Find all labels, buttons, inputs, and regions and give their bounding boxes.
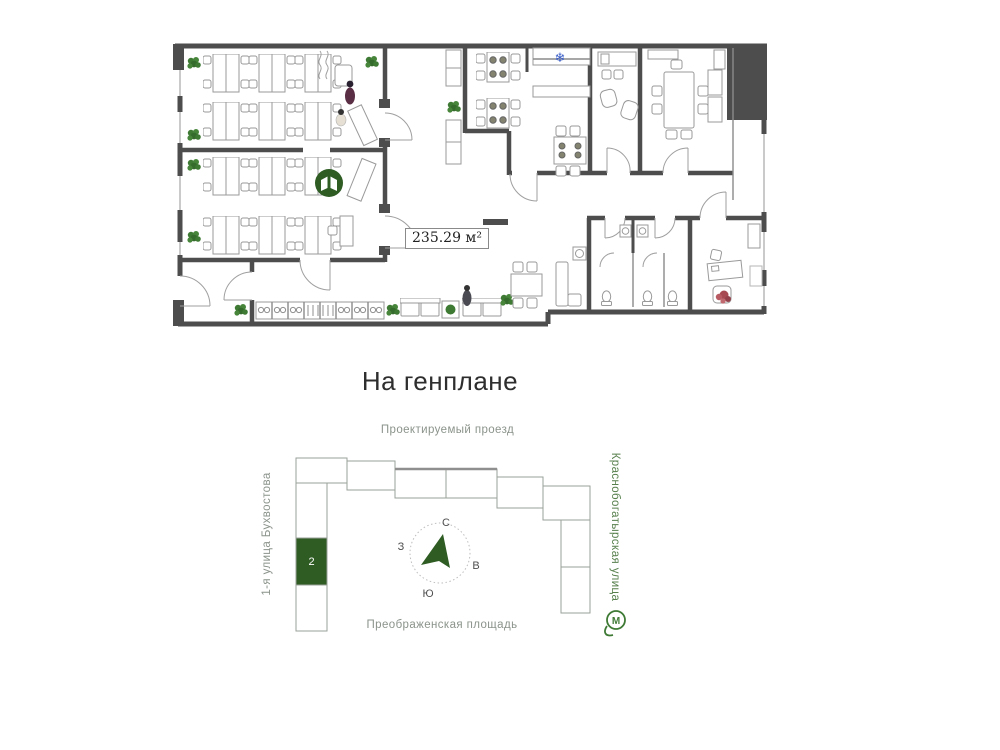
- desk-bank: [249, 102, 295, 140]
- dining-table: [554, 137, 586, 164]
- appliance: [573, 247, 586, 260]
- side-desk: [340, 216, 353, 246]
- desk-bank: [249, 157, 295, 195]
- tilted-desk: [347, 158, 376, 201]
- sink: [637, 225, 648, 237]
- conference-room: [648, 50, 725, 139]
- compass-north-label: С: [442, 517, 450, 529]
- tilted-desk: [348, 105, 378, 146]
- bathrooms: [602, 225, 678, 306]
- building-block: [497, 477, 543, 508]
- lounge-chair: [599, 88, 618, 108]
- building-block: [347, 461, 395, 490]
- genplan-title: На генплане: [335, 366, 545, 397]
- chair: [328, 226, 337, 235]
- metro-icon: М: [605, 611, 625, 635]
- toilet: [643, 291, 653, 306]
- building-block-2-highlighted[interactable]: 2: [296, 538, 327, 585]
- reception-counter: [483, 219, 508, 225]
- metro-letter: М: [612, 616, 620, 627]
- building-block: [296, 483, 327, 538]
- plant-icon: [187, 129, 200, 141]
- plant-icon: [187, 231, 200, 243]
- conference-table: [664, 72, 694, 128]
- building-number: 2: [308, 556, 314, 568]
- desk-bank: [249, 216, 295, 254]
- plant-icon: [234, 304, 247, 316]
- meeting-table: [511, 274, 542, 296]
- plant-icon: [386, 304, 399, 316]
- desk-bank: [295, 102, 341, 140]
- area-label: 235.29 м²: [405, 228, 489, 249]
- cabinet: [748, 224, 760, 248]
- kitchen-island: [533, 86, 590, 97]
- book-icon: [315, 169, 343, 197]
- compass-east-label: В: [472, 560, 479, 572]
- sofa: [400, 298, 440, 316]
- sink: [620, 225, 631, 237]
- plant-icon: [365, 56, 378, 68]
- plant-icon: [187, 159, 200, 171]
- office-small: [598, 52, 639, 121]
- page: ❄: [0, 0, 1000, 750]
- building-block: [561, 567, 590, 613]
- desk-bank: [295, 54, 341, 92]
- cafe-table: [476, 52, 520, 82]
- street-label-right: Краснобогатырская улица: [609, 441, 621, 613]
- building-block: [543, 486, 590, 520]
- cabinet: [714, 50, 725, 69]
- compass-south-label: Ю: [422, 588, 433, 600]
- plant-icon: [447, 101, 460, 113]
- room-open-office-bottom: [187, 157, 376, 254]
- site-plan: 2 С З В Ю М: [296, 458, 625, 635]
- desk-bank: [203, 216, 249, 254]
- entry-wardrobe: [234, 302, 384, 319]
- cafe-table: [476, 98, 520, 128]
- north-arrow-icon: [421, 534, 450, 568]
- window-bench: [750, 266, 762, 286]
- street-label-left: 1-я улица Бухвостова: [261, 454, 273, 614]
- toilet: [602, 291, 612, 306]
- desk-bank: [249, 54, 295, 92]
- cabinet: [648, 50, 678, 59]
- kitchen: ❄: [476, 48, 590, 176]
- floor-plan: ❄: [173, 44, 767, 326]
- cabinet: [708, 97, 722, 122]
- building-block: [296, 458, 347, 483]
- desk-bank: [203, 157, 249, 195]
- street-label-top: Проектируемый проезд: [360, 424, 535, 436]
- snowflake-icon: ❄: [555, 50, 566, 65]
- building-block: [561, 520, 590, 567]
- plant-icon: [446, 305, 456, 315]
- desk-bank: [203, 102, 249, 140]
- compass-west-label: З: [398, 541, 405, 553]
- street-label-bottom: Преображенская площадь: [352, 619, 532, 631]
- building-block: [296, 585, 327, 631]
- office-bottom-right: [707, 224, 762, 304]
- toilet: [668, 291, 678, 306]
- corner-sofa: [556, 262, 568, 306]
- desk-bank: [203, 54, 249, 92]
- cabinet: [708, 70, 722, 95]
- lounge-chair: [620, 99, 640, 121]
- person-standing: [463, 285, 472, 306]
- compass-rose: С З В Ю: [398, 517, 480, 600]
- plant-icon: [187, 57, 200, 69]
- room-open-office-top: [187, 51, 378, 146]
